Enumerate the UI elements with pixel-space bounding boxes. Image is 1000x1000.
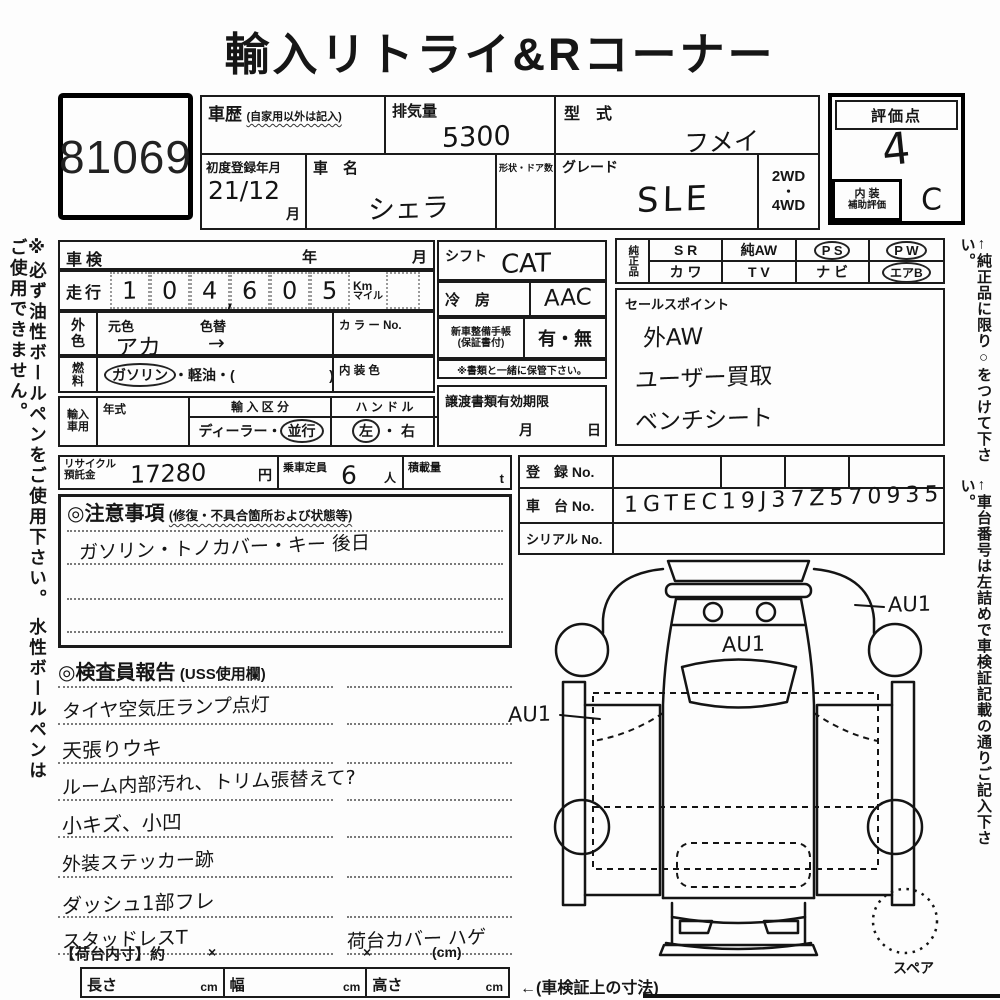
sales-point-line: ベンチシート <box>635 393 935 438</box>
left-margin-note: ※必ず油性ボールペンをご使用下さい。 水性ボールペンはご使用できません。 <box>8 238 47 783</box>
year-type-cell: 年式 <box>98 398 190 445</box>
color-change-arrow: → <box>208 330 225 355</box>
transfer-docs-cell: 譲渡書類有効期限 月 日 <box>437 385 607 447</box>
ac-label: 冷 房 <box>445 289 490 310</box>
car-name-value: シェラ <box>368 184 490 227</box>
dims-width-unit: cm <box>343 980 360 994</box>
dims-note: ←(車検証上の寸法) <box>520 974 659 998</box>
dims-height-unit: cm <box>486 980 503 994</box>
capacity-value: 6 <box>341 460 357 490</box>
drive-2wd: 2WD <box>772 169 805 185</box>
cautions-heading: ◎注意事項 <box>67 503 164 525</box>
reg-no-label: 登 録 No. <box>526 462 612 482</box>
color-no-cell: カ ラ ー No. <box>332 313 437 354</box>
dims-length-label: 長さ <box>87 974 117 995</box>
inspector-heading-note: (USS使用欄) <box>180 666 266 683</box>
page-title: 輸入リトライ&Rコーナー <box>0 18 1000 83</box>
service-book-row: 新車整備手帳 (保証書付) 有・無 <box>437 317 607 359</box>
inspector-row-left: 天張りウキ <box>62 731 162 764</box>
right-margin-note-chassis: ←車台番号は左詰めで車検証記載の通りご記入下さい。 <box>958 478 991 858</box>
recycle-value: 17280 <box>130 458 207 489</box>
sales-points-box: セールスポイント 外AW ユーザー買取 ベンチシート <box>615 288 945 446</box>
inspector-row-left: タイヤ空気圧ランプ点灯 <box>62 690 270 724</box>
au1-annotation-center: AU1 <box>722 631 766 657</box>
capacity-label: 乗車定員 <box>283 459 327 475</box>
right-margin-note-genuine: ←純正品に限り○をつけて下さい。 <box>958 237 991 467</box>
import-label: 輸入 車用 <box>60 398 98 445</box>
service-book-label: 新車整備手帳 <box>451 327 511 339</box>
first-reg-unit: 月 <box>286 204 300 224</box>
inspector-row-left: ルーム内部汚れ、トリム張替えて? <box>62 763 356 800</box>
recycle-label-2: 預託金 <box>64 470 116 481</box>
capacity-cell: 乗車定員 6 人 <box>279 457 404 488</box>
cautions-heading-row: ◎注意事項 (修復・不具合箇所および状態等) <box>67 497 503 532</box>
transfer-month-label: 月 <box>519 420 533 440</box>
shape-doors-label: 形状・ドア数 <box>499 163 553 173</box>
handle-label: ハ ン ド ル <box>332 398 437 418</box>
score-box: 評価点 4 内 装 補助評価 C <box>828 93 965 225</box>
genuine-sr: S R <box>650 240 723 262</box>
genuine-ps: P S <box>797 240 870 262</box>
inspector-heading: ◎検査員報告 <box>58 662 175 684</box>
auction-sheet: 輸入リトライ&Rコーナー 81069 車歴 (自家用以外は記入) 排気量 530… <box>0 0 1000 1000</box>
chassis-no-value: 1GTEC19J37Z570935 <box>623 482 943 518</box>
fuel-value-circled: ガソリン <box>104 363 176 387</box>
shaken-label: 車検 <box>66 246 106 270</box>
au1-annotation-left: AU1 <box>508 701 552 727</box>
transfer-day-label: 日 <box>587 420 601 440</box>
dims-table: 長さ cm 幅 cm 高さ cm <box>80 967 510 998</box>
sales-point-line: 外AW <box>643 309 935 353</box>
bed-dims-x1: × <box>208 944 216 960</box>
handle-left-circled: 左 <box>352 419 380 443</box>
dims-length-unit: cm <box>200 980 217 994</box>
inspector-row-left: 小キズ、小凹 <box>62 806 182 839</box>
chassis-no-label: 車 台 No. <box>526 496 612 516</box>
first-reg-cell: 初度登録年月 21/12 月 <box>200 153 307 230</box>
book-note-strip: ※書類と一緒に保管下さい。 <box>437 359 607 379</box>
dims-length-cell: 長さ cm <box>80 967 225 998</box>
mileage-row: 走行 1 0 4 , 6 0 5 Km マイル <box>58 270 435 311</box>
cautions-box: ◎注意事項 (修復・不具合箇所および状態等) ガソリン・トノカバー・キー 後日 <box>58 494 512 648</box>
grade-value: SLE <box>637 177 752 221</box>
car-diagram-svg <box>500 555 950 957</box>
fuel-options: ・軽油・( <box>174 367 235 383</box>
mileage-digit-cell: 0 <box>270 272 310 309</box>
bed-dims-row: 【荷台内寸】約 × × (cm) <box>60 943 512 965</box>
handle-right: 右 <box>401 423 415 439</box>
mileage-unit-mile: マイル <box>353 292 383 302</box>
genuine-navi: ナ ビ <box>797 262 870 282</box>
car-name-cell: 車 名 シェラ <box>305 153 497 230</box>
grade-label: グレード <box>562 159 618 175</box>
bottom-divider <box>643 994 1000 998</box>
drive-cell: 2WD ・ 4WD <box>757 153 820 230</box>
inspector-report: ◎検査員報告 (USS使用欄) タイヤ空気圧ランプ点灯 天張りウキ ルーム内部汚… <box>58 656 512 955</box>
mileage-digit-cell: 5 <box>310 272 350 309</box>
grade-cell: グレード SLE <box>554 153 759 230</box>
inspector-heading-spacer <box>347 656 512 688</box>
handle-cell: ハ ン ド ル 左 ・ 右 <box>332 398 437 445</box>
inspector-row-left: 外装ステッカー跡 <box>62 845 214 877</box>
capacity-unit: 人 <box>384 469 396 486</box>
dims-height-cell: 高さ cm <box>365 967 510 998</box>
displacement-label: 排気量 <box>392 103 437 120</box>
ac-value: AAC <box>544 284 592 312</box>
inspector-heading-cell: ◎検査員報告 (USS使用欄) <box>58 656 333 688</box>
first-reg-label: 初度登録年月 <box>206 157 301 176</box>
recycle-unit: 円 <box>258 465 272 485</box>
sales-point-line: ユーザー買取 <box>635 351 935 396</box>
serial-no-row: シリアル No. <box>518 522 945 555</box>
lot-number-box: 81069 <box>58 93 193 220</box>
shift-label: シフト <box>445 246 487 266</box>
color-no-label: カ ラ ー No. <box>339 320 402 332</box>
dims-width-label: 幅 <box>230 974 245 995</box>
ac-row: 冷 房 AAC <box>437 281 607 317</box>
bed-dims-x2: × <box>363 944 371 960</box>
mileage-digit-cell: 6 <box>230 272 270 309</box>
load-cell: 積載量 t <box>404 457 510 488</box>
handle-dot: ・ <box>383 423 397 439</box>
ext-color-row: 外 色 元色 色替 アカ → カ ラ ー No. <box>58 311 435 356</box>
interior-eval-value: C <box>921 182 943 218</box>
interior-color-cell: 内 装 色 <box>332 358 437 391</box>
dims-width-cell: 幅 cm <box>223 967 368 998</box>
genuine-leather: カ ワ <box>650 262 723 282</box>
inspector-row-left: ダッシュ1部フレ <box>62 885 215 919</box>
car-name-label: 車 名 <box>313 160 358 177</box>
shift-value: CAT <box>501 248 551 280</box>
cautions-line <box>67 600 503 633</box>
model-label: 型 式 <box>564 106 612 123</box>
shift-cell: シフト CAT <box>437 240 607 281</box>
interior-color-label: 内 装 色 <box>339 365 380 377</box>
cautions-line <box>67 565 503 600</box>
lot-number: 81069 <box>59 130 192 184</box>
fuel-label: 燃 料 <box>60 358 98 391</box>
registration-block: 登 録 No. 車 台 No. 1GTEC19J37Z570935 シリアル N… <box>518 455 945 555</box>
cautions-note: (修復・不具合箇所および状態等) <box>169 509 352 523</box>
history-cell: 車歴 (自家用以外は記入) <box>200 95 386 155</box>
shaken-year-label: 年 <box>302 246 317 267</box>
cautions-line-text: ガソリン・トノカバー・キー 後日 <box>79 528 370 565</box>
first-reg-value: 21/12 <box>208 176 280 205</box>
drive-dot: ・ <box>782 185 795 199</box>
au1-annotation-right: AU1 <box>888 591 932 617</box>
transfer-docs-label: 譲渡書類有効期限 <box>445 391 599 410</box>
recycle-cell: リサイクル 預託金 17280 円 <box>60 457 279 488</box>
serial-no-label: シリアル No. <box>526 529 612 548</box>
cautions-line: ガソリン・トノカバー・キー 後日 <box>67 532 503 565</box>
load-label: 積載量 <box>408 459 441 475</box>
mileage-unit-km: Km <box>353 280 372 292</box>
chassis-no-row: 車 台 No. 1GTEC19J37Z570935 <box>518 487 945 524</box>
displacement-value: 5300 <box>442 119 548 154</box>
shaken-month-label: 月 <box>412 246 427 267</box>
service-book-sublabel: (保証書付) <box>458 338 505 350</box>
spare-tire-circle <box>873 889 937 953</box>
genuine-parts-table: 純正品 S R 純AW P S P W カ ワ T V ナ ビ エアB <box>615 238 945 284</box>
import-class-options: ディーラー・ <box>198 423 281 439</box>
import-class-circled: 並行 <box>280 419 324 443</box>
spare-label: スペア <box>893 958 934 978</box>
bed-dims-unit: (cm) <box>432 944 462 960</box>
shape-doors-cell: 形状・ドア数 <box>495 153 556 230</box>
year-type-label: 年式 <box>103 404 126 416</box>
genuine-aw: 純AW <box>723 240 796 262</box>
mileage-label: 走行 <box>66 279 104 303</box>
service-book-value: 有・無 <box>538 325 592 351</box>
mileage-digit-cell: 0 <box>150 272 190 309</box>
load-unit: t <box>500 471 504 486</box>
car-diagram: AU1 AU1 AU1 <box>500 555 950 957</box>
drive-4wd: 4WD <box>772 198 805 214</box>
history-note: (自家用以外は記入) <box>246 111 341 123</box>
interior-eval-label-2: 補助評価 <box>848 201 886 211</box>
genuine-parts-label: 純正品 <box>617 240 650 282</box>
genuine-airbag: エアB <box>870 262 943 282</box>
mileage-digit-cell: 1 <box>110 272 150 309</box>
dims-height-label: 高さ <box>372 974 402 995</box>
mileage-digit-cell: 4 <box>190 272 230 309</box>
genuine-pw: P W <box>870 240 943 262</box>
shaken-row: 車検 年 月 <box>58 240 435 270</box>
fuel-row: 燃 料 ガソリン・軽油・( ) 内 装 色 <box>58 356 435 393</box>
import-row: 輸入 車用 年式 輸 入 区 分 ディーラー・並行 ハ ン ド ル 左 ・ 右 <box>58 396 435 447</box>
book-note: ※書類と一緒に保管下さい。 <box>457 362 587 377</box>
model-cell: 型 式 フメイ <box>554 95 820 155</box>
bed-dims-label: 【荷台内寸】約 <box>60 943 165 964</box>
interior-eval-label-box: 内 装 補助評価 <box>832 179 902 221</box>
genuine-tv: T V <box>723 262 796 282</box>
recycle-row: リサイクル 預託金 17280 円 乗車定員 6 人 積載量 t <box>58 455 512 490</box>
displacement-cell: 排気量 5300 <box>384 95 556 155</box>
ext-color-label: 外 色 <box>60 313 98 354</box>
history-label: 車歴 <box>208 105 242 124</box>
mileage-empty-cell <box>386 272 420 309</box>
import-class-label: 輸 入 区 分 <box>190 398 330 418</box>
import-class-cell: 輸 入 区 分 ディーラー・並行 <box>190 398 332 445</box>
